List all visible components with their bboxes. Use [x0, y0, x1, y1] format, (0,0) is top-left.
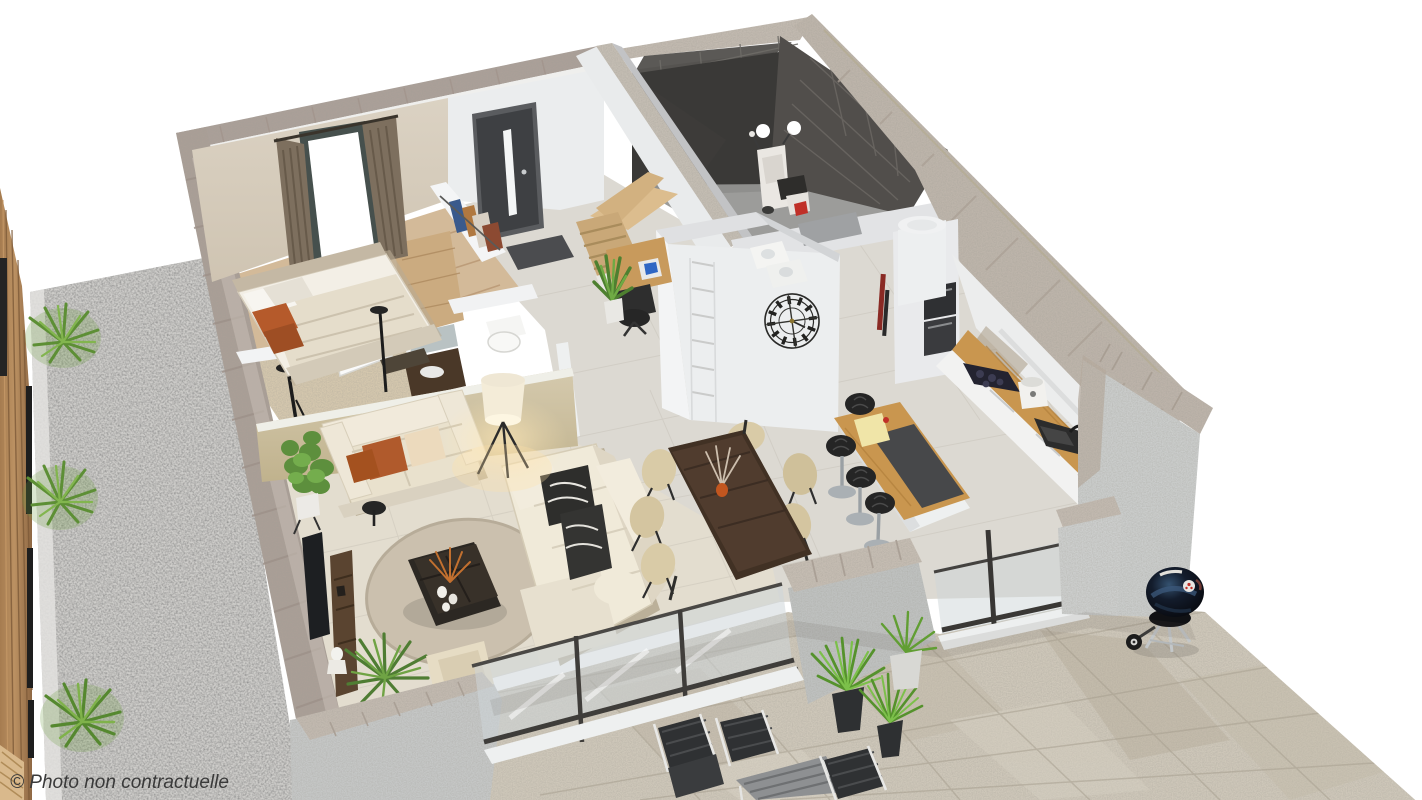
svg-text:© Photo non contractuelle: © Photo non contractuelle [10, 772, 229, 793]
